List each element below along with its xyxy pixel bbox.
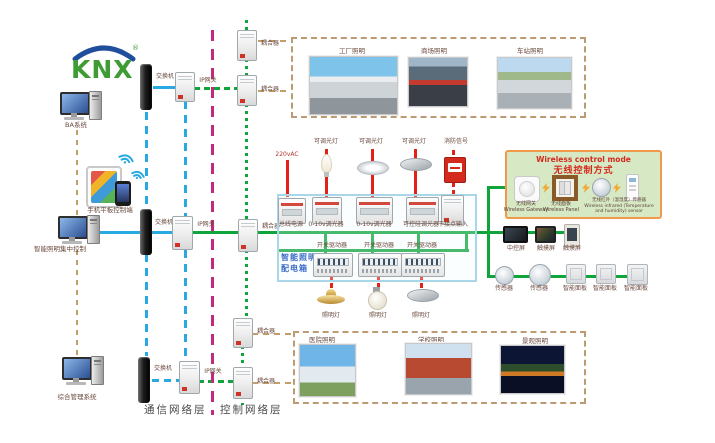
coupler-bus-line: [245, 59, 248, 76]
monitor-icon: [60, 92, 90, 115]
comm-layer-label: 通信网络层: [144, 402, 206, 417]
ceiling-lamp-icon: [317, 289, 345, 307]
pc-tower-icon: [89, 91, 102, 120]
knx-logo: KNX ®: [68, 34, 140, 86]
switch-actuator: [401, 253, 445, 277]
ba-system-pc: [60, 91, 102, 121]
landscape-lighting-photo: [500, 345, 565, 394]
coupler-bus-line: [245, 104, 248, 221]
device-label: 0-10v调光器: [306, 222, 346, 229]
factory-lighting-photo: [309, 56, 398, 115]
mall-lighting-photo: [408, 57, 468, 107]
switch-actuator: [358, 253, 402, 277]
sensor-label: 传感器: [527, 286, 551, 293]
lan-line-mid: [97, 231, 174, 234]
coupler-bus-line: [245, 250, 248, 318]
sensor-label: 传感器: [492, 286, 516, 293]
wireless-gateway-icon: [514, 176, 540, 202]
fire-alarm-icon: [444, 157, 466, 183]
phone-icon: [115, 181, 131, 206]
lighting-control-pc: [58, 215, 100, 245]
management-system-label: 综合管理系统: [38, 394, 116, 401]
wireless-sensor-label: 无线红外（温湿度）传感器 Wireless infrared (Temperat…: [581, 198, 657, 215]
switch-backbone-line: [145, 112, 148, 208]
ip-gateway-label: IP网关: [192, 222, 220, 229]
station-lighting-photo: [497, 57, 572, 109]
device-label: 干接点输入: [436, 222, 470, 229]
photo-caption: 医院照明: [292, 334, 352, 344]
load-line: [414, 149, 417, 197]
central-control-screen-icon: [503, 226, 528, 243]
wireless-sensor-label-en: Wireless infrared (Temperature and humid…: [581, 204, 657, 215]
actuator-label: 开关驱动器: [358, 243, 400, 250]
line-coupler: [237, 75, 257, 106]
distribution-box-label: 智能照明: [281, 252, 317, 263]
pc-link-line: [76, 250, 78, 356]
gateway-backbone-line: [184, 250, 187, 362]
knx-logo-reg: ®: [132, 44, 139, 52]
fire-signal-label: 消防信号: [438, 139, 474, 146]
screen-label: 触摸屏: [532, 246, 560, 253]
management-system-pc: [62, 356, 104, 386]
lamp-label: 照明灯: [406, 313, 436, 320]
bulb-globe: [368, 291, 387, 310]
line-coupler: [233, 367, 253, 399]
dish-lamp-icon: [407, 289, 439, 302]
load-label: 可调光灯: [396, 139, 432, 146]
device-label: 0-10v调光器: [352, 222, 396, 229]
coupler-label: 耦合器: [253, 379, 279, 386]
wireless-link-line: [487, 186, 507, 189]
wireless-signal-icon: [582, 183, 590, 193]
coupler-label: 耦合器: [253, 329, 279, 336]
bulb-lamp-icon: [368, 287, 385, 309]
ethernet-switch: [140, 64, 152, 110]
coupler-label: 耦合器: [257, 87, 283, 94]
photo-caption: 车站照明: [500, 45, 560, 55]
ip-gateway-label: IP网关: [199, 369, 227, 376]
touch-screen-icon: [535, 226, 556, 243]
keyboard-icon: [66, 382, 86, 385]
wireless-signal-icon: [542, 183, 550, 193]
coupler-label: 耦合器: [257, 41, 283, 48]
wireless-panel-icon: [552, 175, 578, 201]
actuator-label: 开关驱动器: [311, 243, 353, 250]
wireless-sensor-label-zh: 无线红外（温湿度）传感器: [581, 198, 657, 204]
ip-gateway: [175, 72, 195, 102]
wifi-icon: [130, 165, 147, 184]
pc-link-line: [76, 130, 78, 216]
line-coupler: [233, 318, 253, 348]
ctrl-layer-label: 控制网络层: [220, 402, 282, 417]
screen-label: 触摸屏: [558, 246, 586, 253]
mains-label: 220vAC: [270, 152, 304, 159]
smart-panel-label: 智能面板: [591, 286, 619, 293]
wireless-panel-label: 无线面板 Wireless Panel: [543, 201, 579, 214]
ba-system-label: BA系统: [46, 122, 106, 129]
smart-panel-label: 智能面板: [561, 286, 589, 293]
touch-panel-icon: [564, 224, 580, 247]
line-coupler: [238, 219, 258, 252]
right-trunk-line: [487, 186, 490, 278]
lighting-control-label: 智能照明集中控制: [20, 246, 100, 253]
switch-actuator: [313, 253, 353, 277]
lan-line-bottom: [152, 379, 180, 382]
load-label: 可调光灯: [308, 139, 344, 146]
ethernet-switch: [140, 209, 152, 255]
dimmer-0-10v: [312, 197, 342, 224]
dimmable-lamp-icon: [321, 154, 332, 173]
gateway-backbone-line: [184, 101, 187, 216]
monitor-icon: [62, 357, 92, 380]
actuator-label: 开关驱动器: [401, 243, 443, 250]
wireless-signal-icon: [613, 183, 621, 193]
lamp-label: 照明灯: [316, 313, 346, 320]
hospital-lighting-photo: [299, 344, 356, 397]
switch-backbone-line: [145, 254, 148, 356]
smart-panel-icon: [596, 264, 616, 284]
pc-tower-icon: [91, 356, 104, 385]
pc-tower-icon: [87, 215, 100, 244]
ethernet-switch: [138, 357, 150, 403]
thyristor-dimmer: [406, 197, 439, 224]
distribution-box-label: 配电箱: [281, 263, 308, 274]
ip-gateway-label: IP网关: [194, 78, 222, 85]
smart-panel-label: 智能面板: [622, 286, 650, 293]
sensor-icon: [495, 266, 514, 285]
dimmer-0-10v: [356, 197, 393, 224]
ip-gateway: [179, 361, 200, 394]
photo-caption: 景观照明: [505, 335, 565, 345]
knx-lighting-system-diagram: KNX ® BA系统 手机平板控制端 智能照明集中控制: [0, 0, 715, 443]
photo-caption: 工厂照明: [322, 45, 382, 55]
dimmable-downlight-icon: [357, 161, 389, 175]
lamp-label: 照明灯: [363, 313, 393, 320]
coupler-bus-line: [241, 346, 244, 367]
lamp-dish: [317, 295, 345, 304]
screen-label: 中控屏: [502, 246, 530, 253]
line-coupler: [237, 30, 257, 61]
ip-gateway: [172, 216, 193, 250]
lan-line-top: [153, 86, 176, 89]
dimmable-ceiling-lamp-icon: [400, 158, 432, 171]
smart-panel-icon: [566, 264, 586, 284]
wireless-remote-icon: [626, 174, 639, 201]
sensor-icon: [529, 264, 551, 286]
device-label: 总线电源: [272, 222, 310, 229]
knx-logo-text: KNX: [71, 55, 134, 82]
mains-line: [286, 160, 289, 197]
school-lighting-photo: [405, 343, 472, 395]
keyboard-icon: [64, 117, 84, 120]
knx-line-bottom: [198, 380, 236, 383]
smart-panel-icon: [627, 264, 648, 285]
wireless-panel-label-en: Wireless Panel: [543, 207, 579, 213]
tablet-screen: [91, 171, 117, 203]
wireless-control-box: Wireless control mode 无线控制方式 无线网关 Wirele…: [505, 150, 662, 219]
keyboard-icon: [62, 241, 82, 244]
load-label: 可调光灯: [353, 139, 389, 146]
wireless-sensor-icon: [592, 178, 611, 197]
photo-caption: 商场照明: [404, 45, 464, 55]
monitor-icon: [58, 216, 88, 239]
switch-label: 交换机: [150, 366, 176, 373]
knx-line-top: [194, 87, 240, 90]
